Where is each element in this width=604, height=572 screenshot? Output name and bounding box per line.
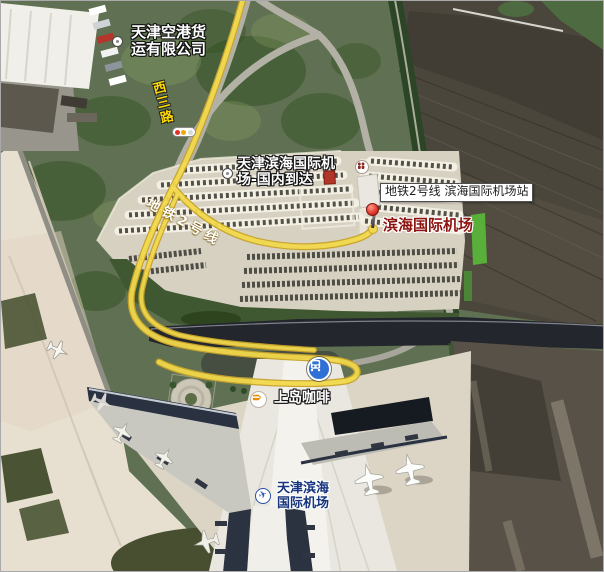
cargo-company-line2: 运有限公司 xyxy=(131,41,206,58)
domestic-arrivals-line2: 场-国内到达 xyxy=(237,172,335,188)
metro-station-tooltip[interactable]: 地铁2号线 滨海国际机场站 xyxy=(380,183,533,202)
terminal-label-line2: 国际机场 xyxy=(277,497,329,512)
cargo-company-label[interactable]: 天津空港货 运有限公司 xyxy=(131,24,206,59)
traffic-light-yellow xyxy=(181,130,186,135)
arrivals-poi-marker-icon[interactable] xyxy=(222,168,233,179)
metro-station-icon[interactable] xyxy=(307,357,331,381)
terminal-label-line1: 天津滨海 xyxy=(277,482,329,497)
construction-dirt xyxy=(451,341,604,572)
coffee-shop-icon[interactable] xyxy=(250,391,267,408)
station-poi-label[interactable]: 滨海国际机场 xyxy=(383,217,473,234)
airport-icon[interactable]: ✈ xyxy=(255,488,271,504)
pin-head xyxy=(366,203,379,216)
satellite-map[interactable]: 天津空港货 运有限公司 西三路 天津滨海国际机 场-国内到达 地铁2号线 地铁2… xyxy=(0,0,604,572)
terminal-airport-label[interactable]: 天津滨海 国际机场 xyxy=(277,482,329,512)
airplane-glyph: ✈ xyxy=(257,489,269,503)
traffic-light-icon xyxy=(172,127,196,137)
station-pin-marker[interactable] xyxy=(363,203,385,235)
traffic-light-red xyxy=(175,130,180,135)
cargo-poi-marker-icon[interactable] xyxy=(112,36,123,47)
hotel-poi-icon[interactable] xyxy=(355,160,369,174)
coffee-shop-label[interactable]: 上岛咖啡 xyxy=(274,390,330,406)
domestic-arrivals-line1: 天津滨海国际机 xyxy=(237,156,335,172)
domestic-arrivals-label[interactable]: 天津滨海国际机 场-国内到达 xyxy=(237,156,335,188)
cargo-company-line1: 天津空港货 xyxy=(131,24,206,41)
traffic-light-off xyxy=(188,130,193,135)
